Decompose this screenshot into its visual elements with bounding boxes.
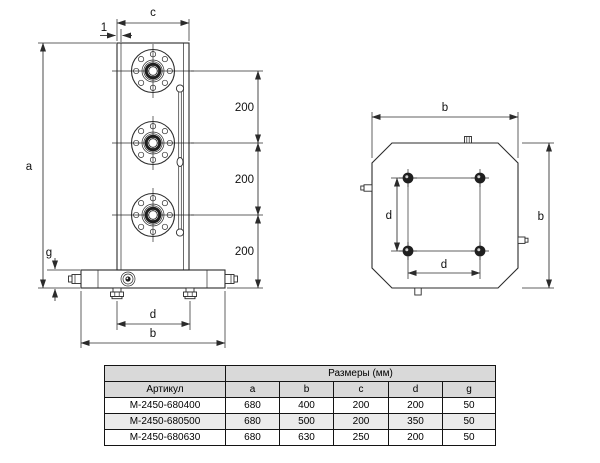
col-header-d: d [389, 382, 443, 398]
dimension-d-horizontal: d [408, 257, 480, 279]
value-cell: 350 [389, 414, 443, 430]
front-view: c 1 a g [26, 7, 263, 348]
technical-drawing: c 1 a g [0, 0, 600, 360]
value-cell: 200 [389, 430, 443, 446]
left-edge-nipple [361, 185, 372, 191]
dimension-wall-thickness: 1 [100, 22, 132, 42]
value-cell: 250 [334, 430, 389, 446]
value-cell: 500 [280, 414, 334, 430]
dim-label-200-3: 200 [235, 246, 254, 258]
dimension-d-front: d [117, 301, 190, 330]
empty-corner-cell [105, 366, 226, 382]
value-cell: 680 [226, 430, 280, 446]
value-cell: 680 [226, 398, 280, 414]
base-manifold [69, 270, 238, 299]
value-cell: 630 [280, 430, 334, 446]
value-cell: 200 [334, 398, 389, 414]
col-header-a: a [226, 382, 280, 398]
top-edge-nipple [465, 137, 472, 144]
dim-label-wall: 1 [101, 22, 107, 34]
top-view: b b d d [361, 102, 554, 295]
value-cell: 50 [443, 430, 496, 446]
value-cell: 200 [334, 414, 389, 430]
left-side-nipple [69, 275, 82, 284]
dim-label-b-front: b [150, 328, 156, 340]
table-row: M-2450-680630 680 630 250 200 50 [105, 430, 496, 446]
dimension-a: a [26, 43, 116, 288]
dimension-b-right: b [522, 143, 554, 288]
dim-label-a: a [26, 161, 33, 173]
value-cell: 400 [280, 398, 334, 414]
article-cell: M-2450-680630 [105, 430, 226, 446]
value-cell: 680 [226, 414, 280, 430]
dim-label-d-front: d [150, 309, 156, 321]
dim-label-b-top: b [442, 102, 448, 114]
dim-label-200-1: 200 [235, 102, 254, 114]
dim-label-c: c [150, 7, 156, 19]
right-side-nipple [225, 275, 238, 284]
dim-label-d-horizontal: d [441, 259, 447, 271]
base-plug [121, 272, 135, 286]
page: c 1 a g [0, 0, 600, 463]
bottom-nozzle-right [184, 288, 197, 299]
table-title-row: Размеры (мм) [105, 366, 496, 382]
dimensions-table: Размеры (мм) Артикул a b c d g M-2450-68… [104, 365, 496, 446]
corner-fitting-tr [471, 169, 489, 187]
bottom-edge-nipple [415, 288, 421, 295]
col-header-c: c [334, 382, 389, 398]
value-cell: 200 [389, 398, 443, 414]
article-cell: M-2450-680500 [105, 414, 226, 430]
dim-label-d-vertical: d [386, 210, 392, 222]
level-gauge-tube [176, 85, 183, 236]
value-cell: 50 [443, 414, 496, 430]
dim-label-b-right: b [538, 211, 544, 223]
table-header-row: Артикул a b c d g [105, 382, 496, 398]
table-row: M-2450-680500 680 500 200 350 50 [105, 414, 496, 430]
dim-label-g: g [46, 247, 52, 259]
table-row: M-2450-680400 680 400 200 200 50 [105, 398, 496, 414]
size-header-cell: Размеры (мм) [226, 366, 496, 382]
dimension-200-chain: 200 200 200 [191, 71, 263, 288]
fitting-square [408, 178, 480, 251]
article-cell: M-2450-680400 [105, 398, 226, 414]
dimension-g: g [46, 247, 80, 301]
article-header-cell: Артикул [105, 382, 226, 398]
dimension-b-top: b [372, 102, 518, 158]
dimension-d-vertical: d [386, 178, 403, 251]
col-header-g: g [443, 382, 496, 398]
value-cell: 50 [443, 398, 496, 414]
right-edge-nipple [518, 237, 528, 243]
bottom-nozzle-left [111, 288, 124, 299]
dim-label-200-2: 200 [235, 174, 254, 186]
col-header-b: b [280, 382, 334, 398]
